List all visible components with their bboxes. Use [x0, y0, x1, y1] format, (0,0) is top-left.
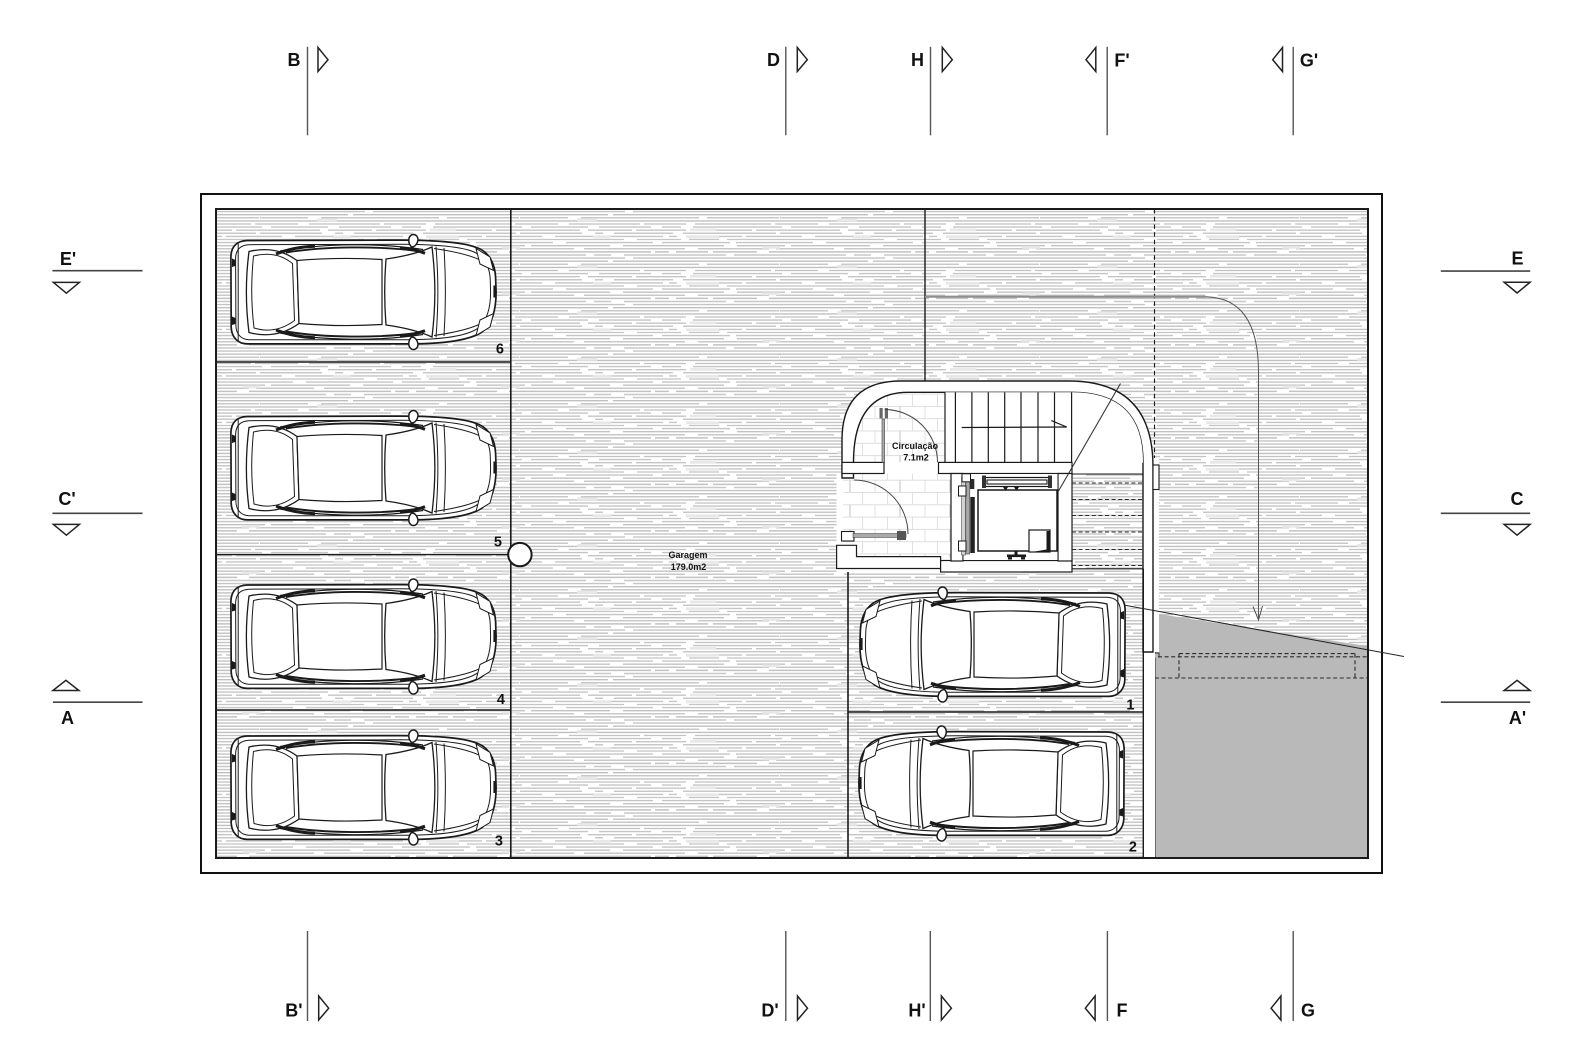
- svg-text:7.1m2: 7.1m2: [903, 453, 929, 463]
- svg-text:179.0m2: 179.0m2: [671, 562, 707, 572]
- svg-text:A': A': [1509, 708, 1526, 728]
- svg-text:5: 5: [494, 534, 502, 550]
- svg-text:D': D': [761, 1001, 778, 1021]
- svg-text:A: A: [61, 708, 74, 728]
- svg-text:D: D: [767, 50, 780, 70]
- svg-text:G': G': [1300, 51, 1318, 71]
- svg-text:G: G: [1301, 1001, 1315, 1021]
- svg-text:4: 4: [497, 692, 505, 708]
- svg-text:B': B': [285, 1001, 302, 1021]
- svg-text:2: 2: [1129, 840, 1137, 856]
- svg-text:E': E': [60, 249, 76, 269]
- svg-text:H: H: [911, 50, 924, 70]
- svg-text:H': H': [908, 1001, 925, 1021]
- svg-text:3: 3: [495, 834, 503, 850]
- svg-text:6: 6: [496, 342, 504, 358]
- svg-text:C: C: [1511, 489, 1524, 509]
- svg-text:F': F': [1114, 51, 1129, 71]
- svg-text:B: B: [288, 50, 301, 70]
- svg-text:C': C': [58, 489, 75, 509]
- svg-text:E: E: [1511, 248, 1523, 268]
- svg-text:Garagem: Garagem: [668, 550, 707, 560]
- svg-text:F: F: [1117, 1001, 1128, 1021]
- svg-text:1: 1: [1126, 698, 1134, 714]
- svg-text:Circulação: Circulação: [892, 441, 939, 451]
